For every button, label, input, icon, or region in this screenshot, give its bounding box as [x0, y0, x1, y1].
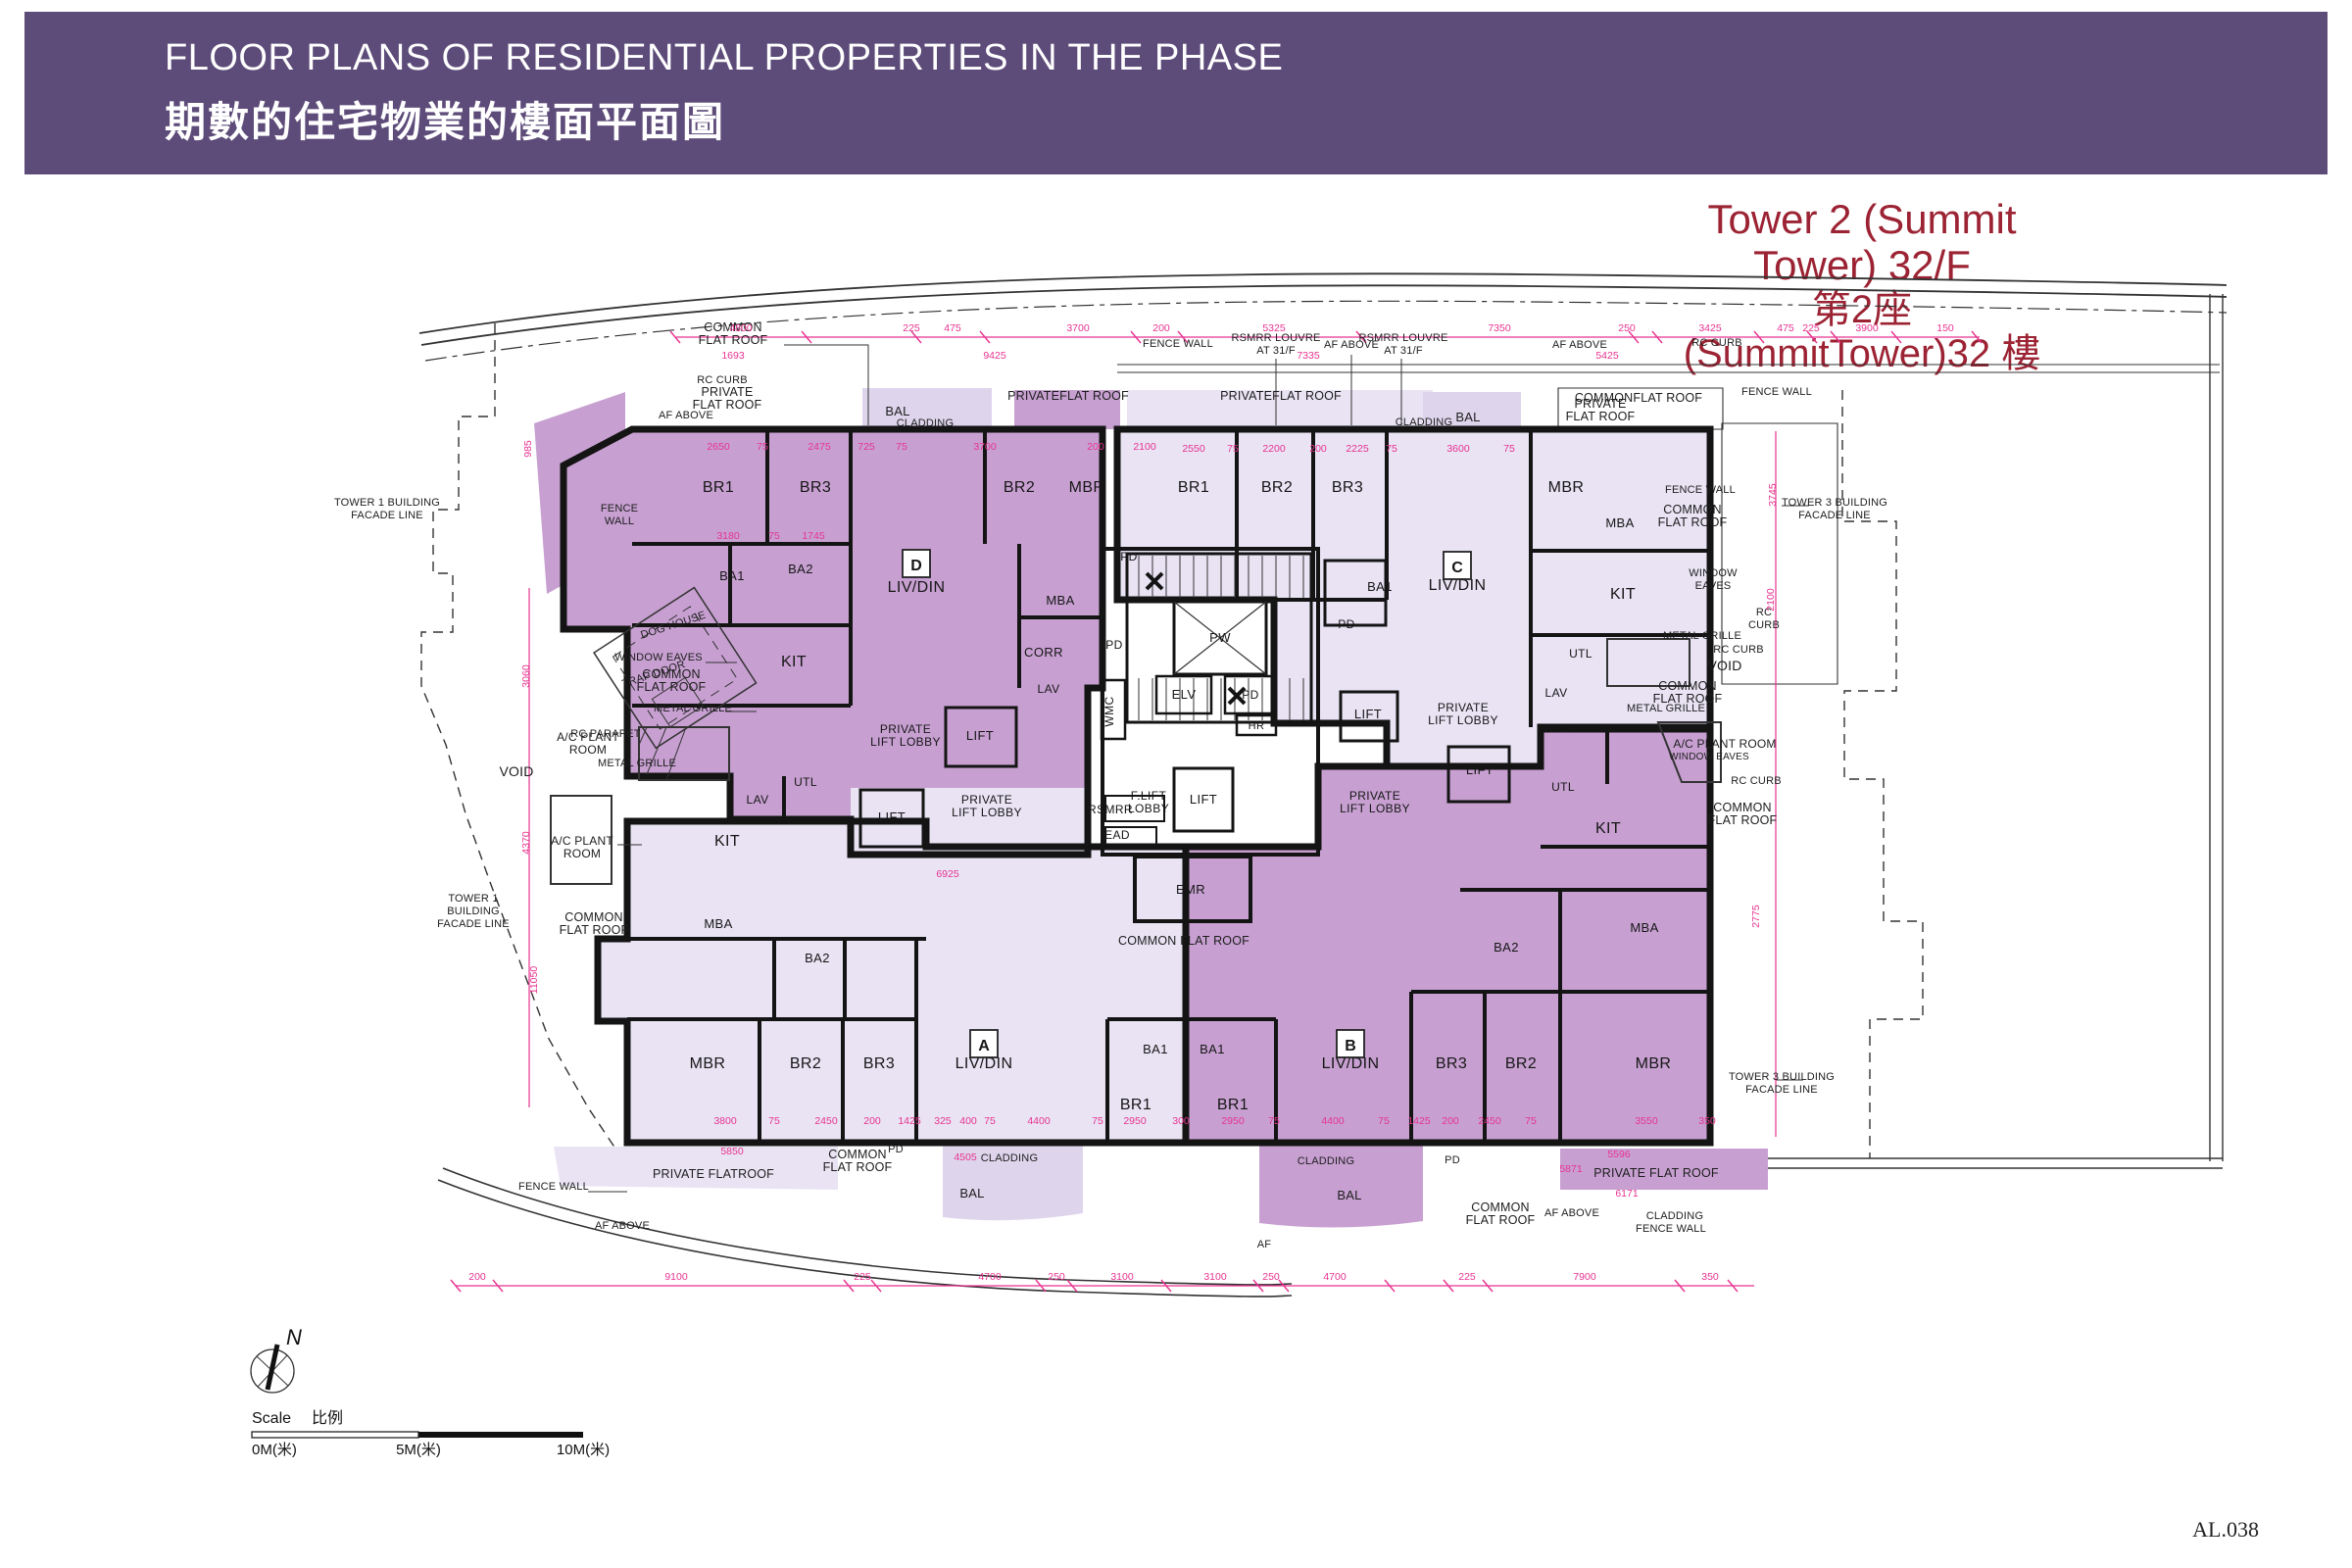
dimension-label: 3600	[1446, 443, 1470, 455]
dimension-label: 3800	[713, 1115, 737, 1127]
room-label: BA1	[1143, 1042, 1168, 1056]
dimension-label: 3745	[1767, 483, 1779, 507]
dimension-label: 2100	[1765, 588, 1777, 612]
room-label: BA2	[788, 562, 813, 576]
annotation-label: PRIVATE FLATROOF	[653, 1167, 774, 1181]
dimension-label: 400	[959, 1115, 977, 1127]
annotation-label: RC CURB	[1713, 644, 1764, 656]
room-label: MBA	[704, 916, 732, 931]
annotation-label: WINDOWEAVES	[1689, 567, 1738, 592]
room-label: PD	[1120, 550, 1137, 563]
annotation-label: PRIVATEFLAT ROOF	[693, 385, 762, 412]
annotation-label: VOID	[1707, 658, 1741, 673]
dimension-label: 75	[768, 1115, 780, 1127]
annotation-label: AF ABOVE	[659, 410, 713, 421]
page-number: AL.038	[2192, 1517, 2259, 1543]
unit-letter: D	[910, 558, 922, 574]
room-label: HR	[1249, 720, 1265, 732]
annotation-label: METAL GRILLE	[598, 758, 676, 769]
annotation-label: FENCE WALL	[1143, 338, 1213, 350]
dimension-label: 250	[1262, 1271, 1280, 1283]
dimension-label: 200	[1152, 322, 1170, 334]
dimension-label: 11050	[528, 966, 540, 995]
room-label: PD	[1242, 688, 1258, 702]
room-label: MBR	[1069, 479, 1105, 496]
dimension-label: 200	[1442, 1115, 1459, 1127]
dimension-label: 3180	[716, 530, 740, 542]
dimension-label: 5850	[720, 1146, 744, 1157]
brochure-page: FLOOR PLANS OF RESIDENTIAL PROPERTIES IN…	[0, 0, 2352, 1568]
room-label: BA2	[805, 951, 830, 965]
room-label: LIFT	[1190, 792, 1217, 807]
dimension-label: 75	[768, 530, 780, 542]
dimension-label: 225	[903, 322, 920, 334]
scale-bar: Scale 比例 0M(米) 5M(米) 10M(米)	[252, 1409, 610, 1458]
room-label: EMR	[1176, 882, 1205, 897]
dimension-label: 725	[857, 441, 875, 453]
dimension-label: 200	[863, 1115, 881, 1127]
annotation-label: WINDOW EAVES	[614, 652, 703, 663]
room-label: F.LIFTLOBBY	[1128, 789, 1169, 815]
room-label: PD	[1105, 638, 1122, 652]
annotation-label: FENCE WALL	[1636, 1223, 1706, 1235]
annotation-label: CLADDING	[981, 1152, 1038, 1164]
annotation-label: TOWER 1 BUILDINGFACADE LINE	[334, 497, 440, 521]
room-label: BR2	[1505, 1055, 1537, 1072]
dimension-label: 475	[1777, 322, 1794, 334]
room-label: BR2	[1261, 479, 1293, 496]
annotation-label: BAL	[1455, 410, 1480, 424]
annotation-label: COMMONFLAT ROOF	[823, 1148, 893, 1174]
room-label: ELV	[1172, 687, 1197, 702]
dimension-label: 75	[1386, 443, 1397, 455]
dimension-label: 2650	[707, 441, 730, 453]
dimension-label: 3100	[1110, 1271, 1134, 1283]
dimension-label: 2200	[1262, 443, 1286, 455]
dimension-label: 2100	[1133, 441, 1156, 453]
room-label: LIFT	[878, 809, 906, 824]
dimension-label: 150	[1936, 322, 1954, 334]
annotation-label: TOWER 3 BUILDINGFACADE LINE	[1782, 497, 1887, 521]
room-label: BR3	[800, 479, 831, 496]
dimension-label: 300	[1172, 1115, 1190, 1127]
room-label: BA2	[1494, 940, 1519, 955]
room-label: PRIVATELIFT LOBBY	[1340, 789, 1410, 815]
annotation-label: PRIVATEFLAT ROOF	[1220, 389, 1342, 403]
room-label: LAV	[747, 793, 769, 807]
dimension-label: 75	[1525, 1115, 1537, 1127]
annotation-label: CLADDING	[897, 417, 954, 429]
annotation-label: CLADDING	[1646, 1210, 1703, 1222]
dimension-label: 200	[1309, 443, 1327, 455]
dimension-label: 75	[1227, 443, 1239, 455]
annotation-label: A/C PLANTROOM	[557, 730, 619, 757]
annotation-label: FENCEWALL	[601, 503, 638, 527]
annotation-label: COMMON FLAT ROOF	[1118, 934, 1249, 948]
annotation-label: METAL GRILLE	[1627, 703, 1705, 714]
dimension-label: 75	[984, 1115, 996, 1127]
annotation-label: METAL GRILLE	[1663, 630, 1741, 642]
dimension-label: 200	[468, 1271, 486, 1283]
room-label: BR1	[1178, 479, 1209, 496]
dimension-label: 75	[1503, 443, 1515, 455]
dimension-label: 4370	[520, 831, 532, 855]
dimension-label: 2550	[1182, 443, 1205, 455]
room-label: BR2	[790, 1055, 821, 1072]
dimension-label: 75	[896, 441, 907, 453]
room-label: PW	[1209, 630, 1231, 645]
room-label: BA1	[1367, 579, 1393, 594]
annotation-label: PRIVATEFLAT ROOF	[1007, 389, 1129, 403]
dimension-label: 325	[934, 1115, 952, 1127]
dimension-label: 4400	[1027, 1115, 1051, 1127]
annotation-label: BAL	[1337, 1188, 1361, 1202]
dimension-label: 3700	[1066, 322, 1090, 334]
annotation-label: COMMONFLAT ROOF	[1466, 1200, 1536, 1227]
room-label: KIT	[714, 833, 740, 850]
dimension-label: 3900	[1855, 322, 1879, 334]
annotation-label: VOID	[499, 763, 533, 779]
annotation-label: RC CURB	[1731, 775, 1782, 787]
dimension-label: 350	[1698, 1115, 1716, 1127]
dimension-label: 3060	[520, 664, 532, 688]
annotation-label: TOWER 1BUILDINGFACADE LINE	[437, 893, 510, 930]
dimension-label: 7350	[1488, 322, 1511, 334]
room-label: PRIVATELIFT LOBBY	[870, 722, 941, 749]
annotation-label: CLADDING	[1396, 416, 1452, 428]
room-label: MBR	[690, 1055, 726, 1072]
room-label: LIV/DIN	[888, 579, 946, 596]
dimension-label: 225	[1458, 1271, 1476, 1283]
dimension-label: 2450	[814, 1115, 838, 1127]
annotation-label: PRIVATE FLAT ROOF	[1593, 1166, 1719, 1180]
room-label: BA1	[1200, 1042, 1225, 1056]
room-label: BR3	[1332, 479, 1363, 496]
annotation-label: COMMONFLAT ROOF	[560, 910, 629, 937]
room-label: BR2	[1004, 479, 1035, 496]
room-label: MBA	[1630, 920, 1658, 935]
dimension-label: 4700	[978, 1271, 1002, 1283]
dimension-label: 2475	[808, 441, 831, 453]
dimension-label: 350	[1701, 1271, 1719, 1283]
annotation-label: COMMONFLAT ROOF	[1708, 801, 1778, 827]
annotation-label: PRIVATEFLAT ROOF	[1566, 397, 1636, 423]
annotation-label: BAL	[885, 404, 909, 418]
annotation-label: FENCE WALL	[1741, 386, 1812, 398]
dimension-label: 3100	[1203, 1271, 1227, 1283]
unit-letter: C	[1451, 560, 1463, 576]
unit-letter: B	[1345, 1038, 1356, 1054]
room-label: UTL	[794, 775, 817, 789]
dimension-label: 75	[757, 441, 768, 453]
annotation-label: RC CURB	[1691, 337, 1742, 349]
dimension-label: 5325	[1262, 322, 1286, 334]
dimension-label: 1693	[721, 350, 745, 362]
dimension-label: 225	[1802, 322, 1820, 334]
scale-tick-10: 10M(米)	[557, 1442, 610, 1458]
dimension-label: 75	[1268, 1115, 1280, 1127]
dimension-label: 3700	[973, 441, 997, 453]
room-label: BA1	[719, 568, 745, 583]
floor-plan-drawing: BR1BR3BR2MBRBA1BA2LIV/DINMBACORRKITLAVUT…	[0, 0, 2352, 1568]
dimension-label: 5425	[1595, 350, 1619, 362]
room-label: BR3	[1436, 1055, 1467, 1072]
annotation-label: AF	[1257, 1239, 1272, 1250]
dimension-label: 7900	[1573, 1271, 1596, 1283]
dimension-label: 225	[854, 1271, 871, 1283]
unit-letter: A	[978, 1038, 990, 1054]
room-label: LAV	[1038, 682, 1060, 696]
annotation-label: FENCE WALL	[1665, 484, 1736, 496]
dimension-label: 985	[522, 440, 534, 458]
dimension-label: 200	[1087, 441, 1104, 453]
room-label: LAV	[1560, 721, 1583, 735]
dimension-label: 5871	[1559, 1163, 1583, 1175]
room-label: MBA	[1605, 515, 1634, 530]
dimension-label: 1425	[898, 1115, 921, 1127]
dimension-label: 3550	[1635, 1115, 1658, 1127]
dimension-label: 475	[944, 322, 961, 334]
annotation-label: BAL	[959, 1186, 984, 1200]
annotation-label: METAL GRILLE	[654, 703, 732, 714]
room-label: BR3	[863, 1055, 895, 1072]
dimension-label: 3425	[1698, 322, 1722, 334]
annotation-label: COMMONFLAT ROOF	[1653, 679, 1723, 706]
room-label: KIT	[1595, 820, 1621, 837]
dimension-label: 4700	[1323, 1271, 1347, 1283]
annotation-label: COMMONFLAT ROOF	[637, 667, 707, 694]
room-label: WMC	[1102, 696, 1116, 726]
annotation-label: A/C PLANT ROOM	[1673, 737, 1776, 751]
scale-tick-5: 5M(米)	[396, 1442, 441, 1458]
dimension-label: 2450	[1478, 1115, 1501, 1127]
annotation-label: AF ABOVE	[1544, 1207, 1599, 1219]
dimension-label: 75	[1378, 1115, 1390, 1127]
annotation-label: WINDOW EAVES	[1669, 752, 1749, 762]
north-arrow: N	[251, 1325, 302, 1393]
room-label: MBR	[1548, 479, 1585, 496]
dimension-label: 4400	[1321, 1115, 1345, 1127]
dimension-label: 4505	[954, 1151, 977, 1163]
room-label: PRIVATELIFT LOBBY	[1428, 701, 1498, 727]
dimension-label: 1745	[802, 530, 825, 542]
room-label: LIFT	[1354, 707, 1382, 721]
room-label: PRIVATELIFT LOBBY	[952, 793, 1022, 819]
room-label: BR1	[703, 479, 734, 496]
dimension-label: 250	[1048, 1271, 1065, 1283]
dimension-label: 250	[1618, 322, 1636, 334]
annotation-label: CLADDING	[1298, 1155, 1354, 1167]
room-label: LIFT	[1466, 762, 1494, 777]
dimension-label: 1425	[1407, 1115, 1431, 1127]
room-label: UTL	[1551, 780, 1575, 794]
room-label: RSMRR	[1088, 803, 1133, 816]
scale-tick-0: 0M(米)	[252, 1442, 297, 1458]
unit-a-fill	[598, 821, 1186, 1143]
annotation-label: A/C PLANTROOM	[551, 834, 613, 860]
dimension-label: 2775	[1750, 905, 1762, 928]
room-label: MBR	[1636, 1055, 1672, 1072]
annotation-label: COMMONFLAT ROOF	[1658, 503, 1728, 529]
room-label: UTL	[1569, 647, 1592, 661]
dimension-label: 7335	[1297, 350, 1320, 362]
scale-label-zh: 比例	[312, 1409, 343, 1427]
room-label: KIT	[781, 654, 807, 670]
room-label: CORR	[1024, 645, 1063, 660]
dimension-label: 9425	[983, 350, 1006, 362]
dimension-label: 4800	[729, 322, 753, 334]
room-label: MBA	[1046, 593, 1074, 608]
annotation-label: PD	[888, 1144, 904, 1155]
dimension-label: 5596	[1607, 1149, 1631, 1160]
dimension-label: 2225	[1346, 443, 1369, 455]
room-label: PD	[1338, 617, 1354, 631]
room-label: EAD	[1104, 828, 1130, 842]
north-label: N	[286, 1325, 302, 1349]
dimension-label: 6171	[1615, 1188, 1639, 1200]
scale-label-en: Scale	[252, 1410, 291, 1427]
room-label: BR1	[1217, 1097, 1249, 1113]
annotation-label: PD	[1445, 1154, 1460, 1166]
dimension-label: 75	[1092, 1115, 1103, 1127]
room-label: LAV	[1545, 686, 1568, 700]
dimension-label: 9100	[664, 1271, 688, 1283]
dimension-label: 2950	[1221, 1115, 1245, 1127]
room-label: BR1	[1120, 1097, 1151, 1113]
annotation-label: TOWER 3 BUILDINGFACADE LINE	[1729, 1071, 1835, 1096]
dimension-label: 2950	[1123, 1115, 1147, 1127]
room-label: LIFT	[966, 728, 994, 743]
annotation-label: FENCE WALL	[518, 1181, 589, 1193]
dimension-label: 6925	[936, 868, 959, 880]
annotation-label: AF ABOVE	[595, 1220, 650, 1232]
room-label: KIT	[1610, 586, 1636, 603]
